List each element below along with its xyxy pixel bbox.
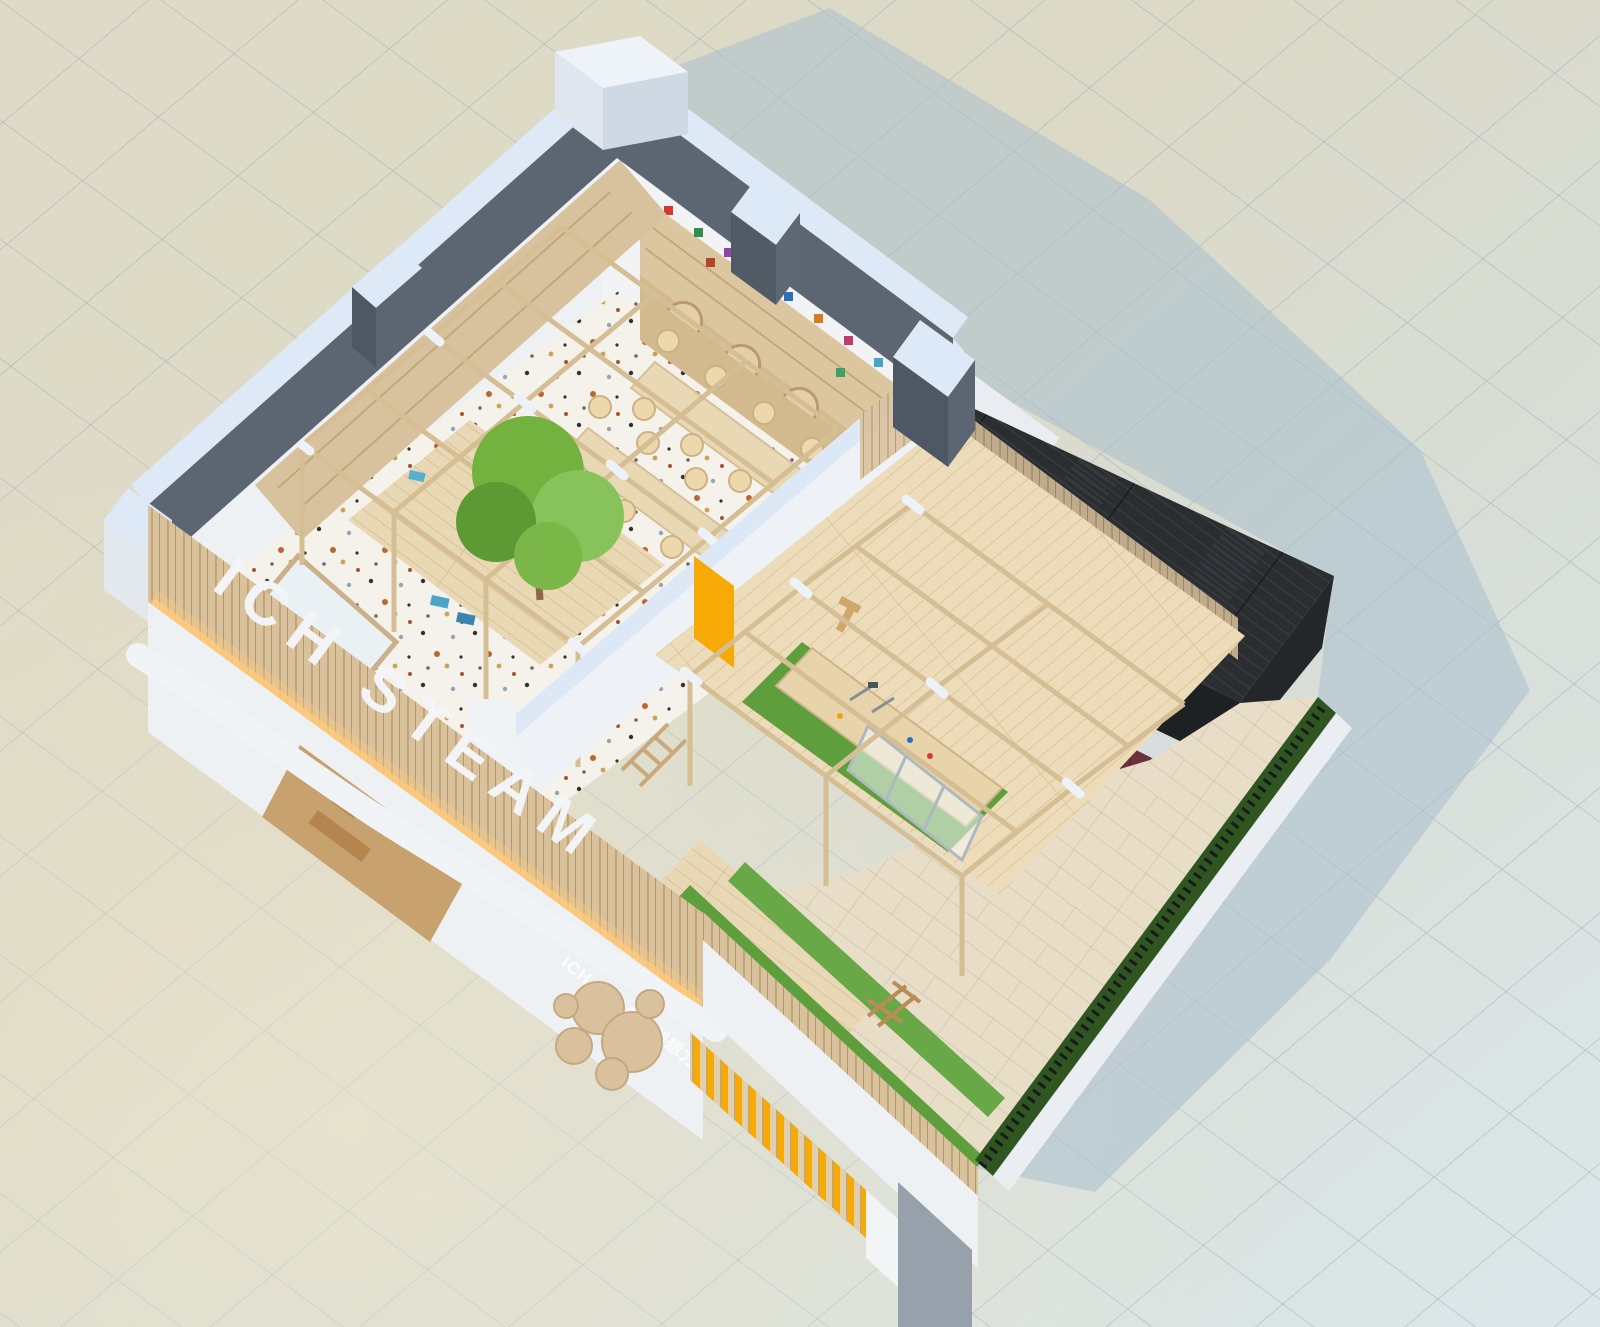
render-stage: ICH STEAM ICH STEAM 创想力工坊 xyxy=(0,0,1600,1327)
isometric-render-canvas: ICH STEAM ICH STEAM 创想力工坊 xyxy=(0,0,1600,1327)
tree-canopy xyxy=(514,522,582,590)
